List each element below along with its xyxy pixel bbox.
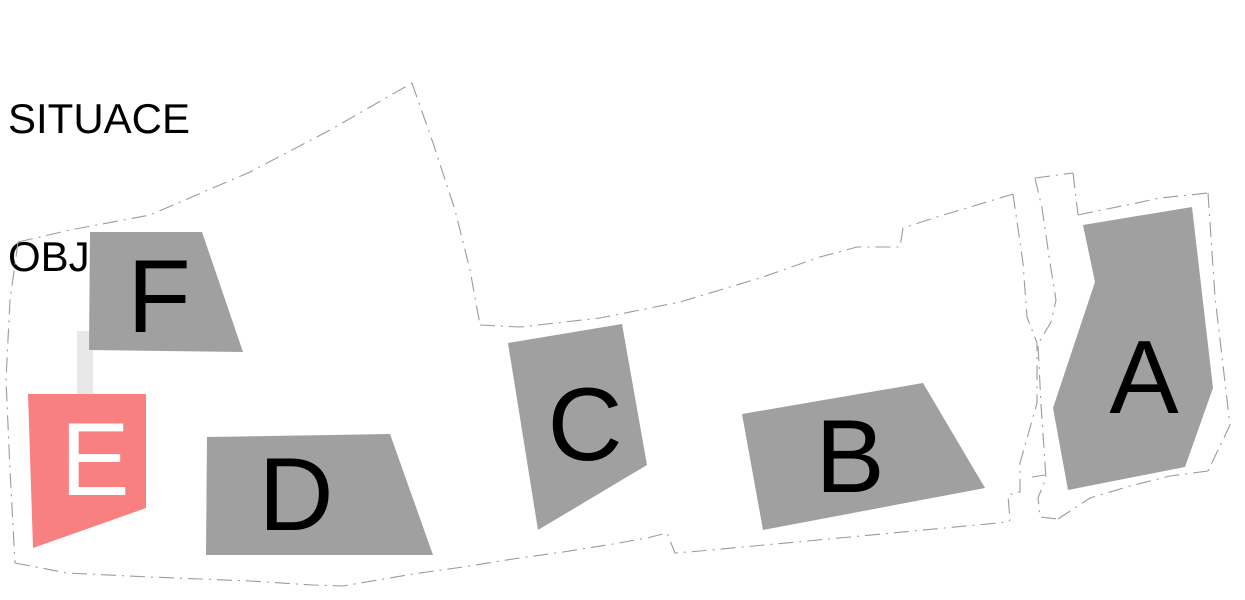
- building-c-shape[interactable]: [508, 324, 647, 530]
- building-b-shape[interactable]: [742, 383, 985, 530]
- boundary-outer-top-left: [18, 83, 412, 242]
- buildings-layer: [28, 207, 1213, 555]
- building-f-shape[interactable]: [89, 232, 243, 352]
- boundary-middle-parcel-right: [1008, 194, 1037, 520]
- boundary-corridor-cap: [1035, 173, 1073, 178]
- site-plan-svg: FEDCBA: [0, 0, 1245, 600]
- boundary-middle-parcel-top: [480, 194, 1013, 327]
- boundary-corridor-left: [1035, 178, 1058, 519]
- boundary-outer-left: [6, 242, 18, 563]
- building-e-shape[interactable]: [28, 394, 146, 548]
- site-plan-page: SITUACE OBJEKTY FEDCBA: [0, 0, 1245, 600]
- boundary-parcel-divider: [412, 83, 480, 325]
- building-a-shape[interactable]: [1053, 207, 1213, 490]
- boundary-corridor-right: [1073, 173, 1078, 215]
- boundary-outer-bottom: [15, 520, 1010, 586]
- boundary-corner-tick: [1032, 475, 1045, 477]
- building-d-shape[interactable]: [206, 434, 433, 555]
- boundary-parcel-a-right: [1208, 193, 1230, 471]
